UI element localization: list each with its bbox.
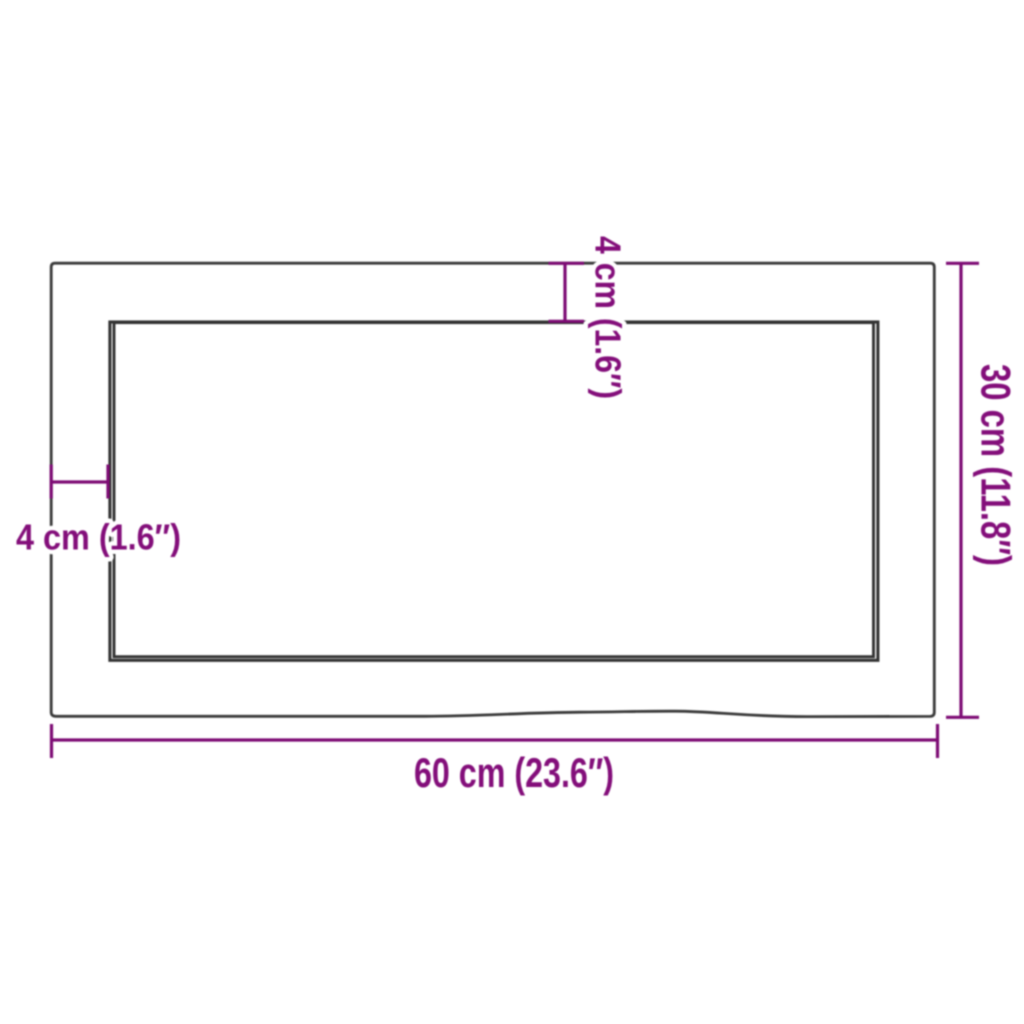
svg-text:60 cm (23.6″): 60 cm (23.6″) [414, 749, 614, 796]
svg-text:4 cm (1.6″): 4 cm (1.6″) [16, 517, 181, 558]
svg-text:30 cm (11.8″): 30 cm (11.8″) [973, 364, 1020, 566]
svg-text:4 cm (1.6″): 4 cm (1.6″) [588, 236, 629, 399]
